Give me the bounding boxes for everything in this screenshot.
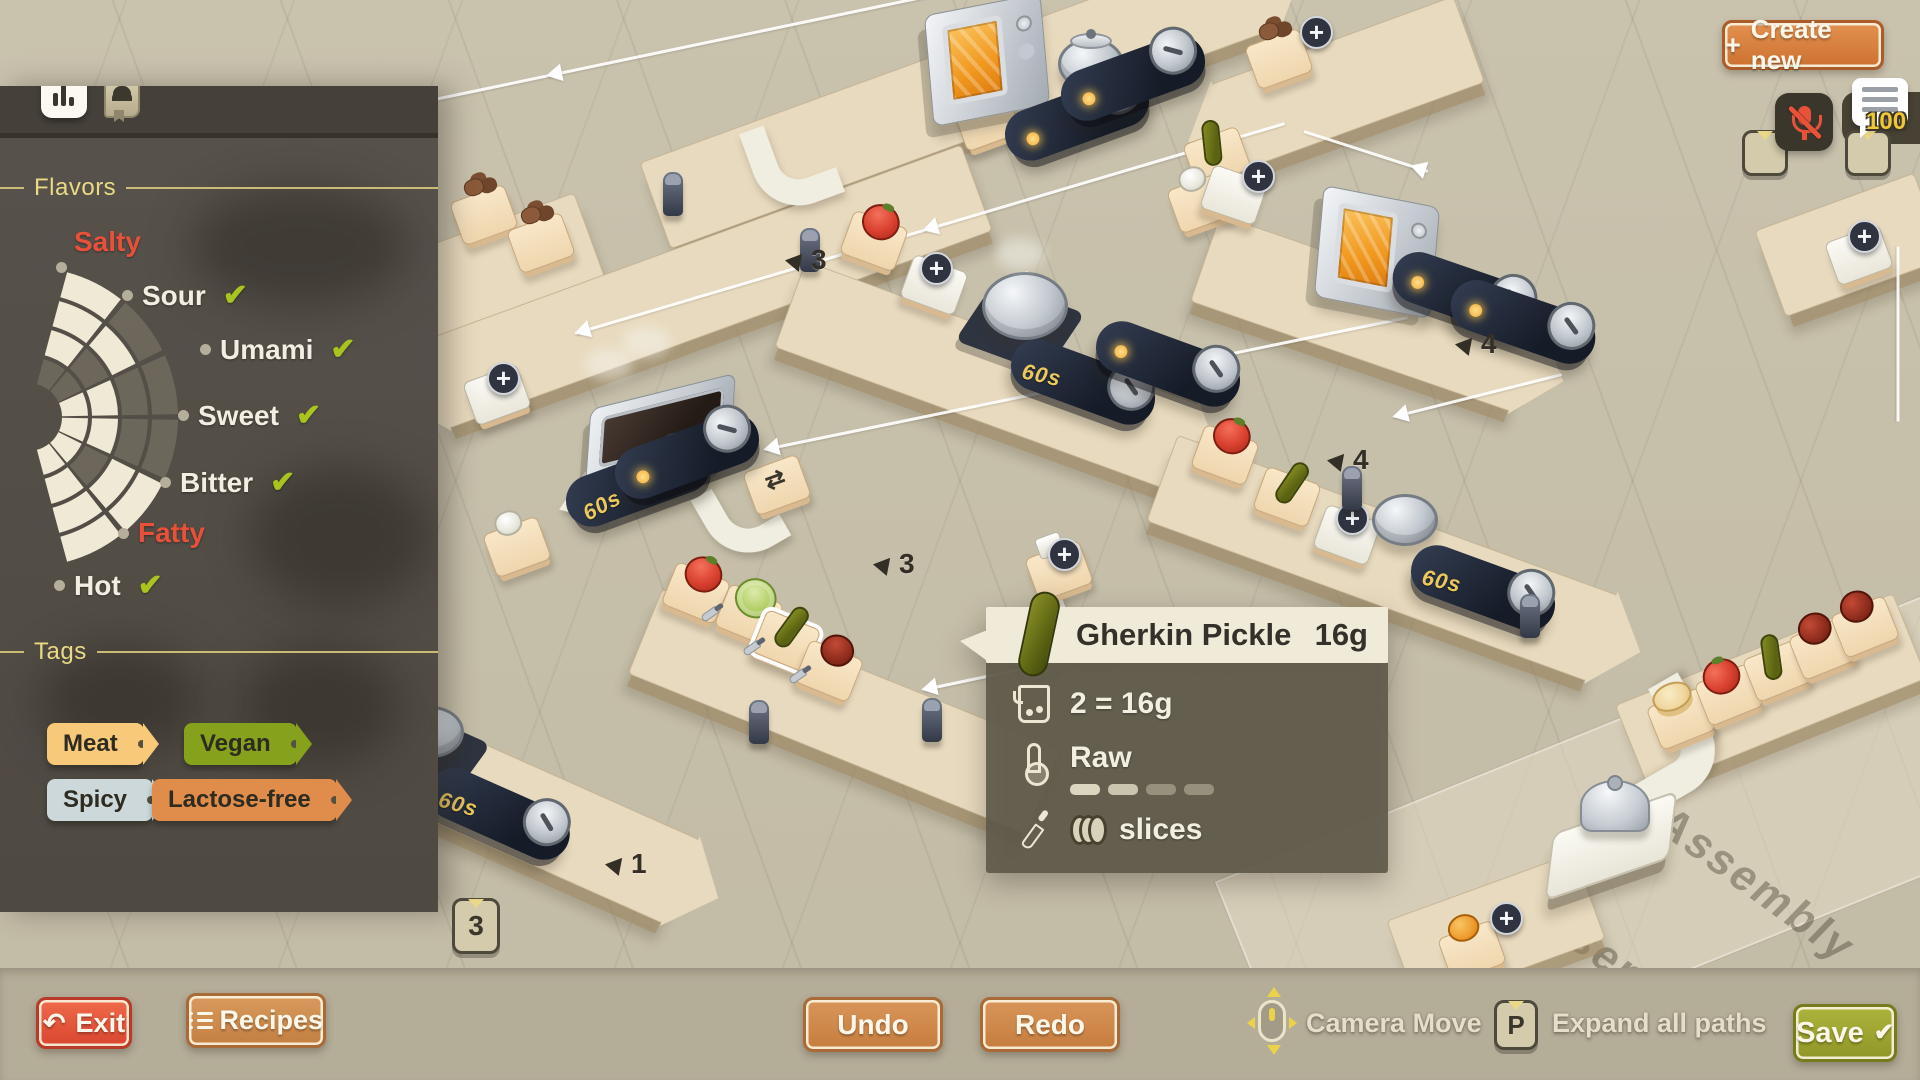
flavor-wheel-segment — [114, 368, 148, 416]
flavor-item-hot[interactable]: Hot✔ — [54, 568, 163, 603]
flavor-item-sweet[interactable]: Sweet✔ — [178, 398, 321, 433]
pickle-icon — [1272, 459, 1313, 507]
indicator-led — [1081, 90, 1098, 107]
create-new-button[interactable]: + Create new — [1722, 20, 1884, 70]
conveyor-path-line — [1897, 247, 1900, 422]
pepper-grinder[interactable] — [922, 698, 942, 742]
tooltip-state-row: Raw — [1012, 741, 1364, 795]
flavor-wheel-segment — [70, 349, 109, 389]
tooltip-state: Raw — [1070, 741, 1132, 774]
tooltip-pointer — [960, 629, 990, 663]
check-icon: ✔ — [223, 278, 248, 313]
timer-value: 60s — [435, 787, 480, 823]
add-ingredient-button[interactable] — [487, 362, 520, 395]
flavor-wheel-segment — [89, 326, 136, 376]
flavor-wheel-segment — [45, 330, 84, 367]
flavor-wheel-segment — [86, 380, 118, 416]
cloche-dome-icon — [1580, 780, 1650, 832]
flavor-wheel-segment — [60, 272, 121, 319]
flavors-section-header: Flavors — [0, 174, 438, 202]
flavor-item-umami[interactable]: Umami✔ — [200, 332, 356, 367]
path-count-badge: 3 — [876, 548, 915, 580]
timer-value: 60s — [1019, 359, 1063, 393]
flavor-item-sour[interactable]: Sour✔ — [122, 278, 248, 313]
meatball-icon — [815, 629, 859, 671]
tag-spicy[interactable]: Spicy — [47, 779, 153, 821]
ingredient-tooltip: Gherkin Pickle 16g 2 = 16g Raw slices — [986, 607, 1388, 873]
tag-label: Vegan — [200, 730, 271, 758]
flavor-wheel-segment — [37, 444, 65, 475]
oven-knobs-icon — [1410, 221, 1427, 240]
tooltip-header: Gherkin Pickle 16g — [986, 607, 1388, 663]
tooltip-quantity: 2 = 16g — [1070, 687, 1173, 721]
tags-title: Tags — [24, 638, 97, 666]
bent-arrow-icon — [1455, 332, 1479, 356]
check-icon: ✔ — [330, 332, 355, 367]
tooltip-prep-row: slices — [1012, 813, 1364, 847]
message-count-badge: 100 — [1866, 108, 1906, 136]
cook-state-meter — [1070, 784, 1214, 795]
flavors-title: Flavors — [24, 174, 126, 202]
flavor-wheel-segment — [86, 418, 118, 454]
tag-label: Spicy — [63, 786, 127, 814]
cutting-board[interactable] — [482, 515, 552, 578]
path-count-badge: 1 — [608, 848, 647, 880]
flavor-wheel-segment — [50, 371, 82, 402]
flavor-wheel-segment — [37, 359, 65, 390]
flavor-dot — [54, 580, 65, 591]
expand-paths-key[interactable]: P — [1494, 1000, 1538, 1050]
cooking-pot[interactable] — [1372, 494, 1438, 546]
plus-icon: + — [1725, 32, 1741, 59]
flavor-wheel-segment — [45, 467, 84, 504]
tag-lactose-free[interactable]: Lactose-free — [152, 779, 337, 821]
garlic-icon — [491, 507, 526, 540]
indicator-led — [1409, 274, 1426, 291]
oven-window — [942, 15, 1008, 106]
timer-value: 60s — [1419, 565, 1463, 599]
indicator-led — [635, 468, 652, 485]
pepper-grinder[interactable] — [663, 172, 683, 216]
knife-icon — [1012, 815, 1056, 845]
flavor-wheel-segment — [70, 446, 109, 486]
game-viewport: ⇄60s60s60s60s34413AssemblyAssembly Gherk… — [0, 0, 1920, 1080]
steam-puff — [585, 348, 633, 380]
path-arrow-icon — [1390, 404, 1410, 425]
add-ingredient-button[interactable] — [1300, 16, 1333, 49]
pepper-grinder[interactable] — [1520, 594, 1540, 638]
tag-hole — [331, 796, 339, 804]
indicator-led — [1025, 130, 1042, 147]
oven-knobs-icon — [1015, 14, 1032, 33]
save-button[interactable]: Save ✔ — [1793, 1004, 1897, 1062]
thermometer-icon — [1012, 743, 1056, 773]
tooltip-prep: slices — [1119, 813, 1202, 847]
tomato-icon — [679, 551, 728, 599]
back-arrow-icon: ↶ — [43, 1010, 66, 1037]
flavor-dot — [56, 262, 67, 273]
microphone-muted-button[interactable] — [1775, 93, 1833, 151]
path-count-badge: 3 — [788, 244, 827, 276]
flavor-dot — [178, 410, 189, 421]
add-ingredient-button[interactable] — [920, 252, 953, 285]
add-ingredient-button[interactable] — [1242, 160, 1275, 193]
flavor-dot — [122, 290, 133, 301]
bent-arrow-icon — [785, 248, 809, 272]
tab-flavor-stats[interactable] — [41, 86, 87, 118]
flavor-wheel-segment — [114, 419, 148, 467]
path-count-badge: 4 — [1330, 444, 1369, 476]
add-ingredient-button[interactable] — [1490, 902, 1523, 935]
camera-move-label: Camera Move — [1306, 1008, 1482, 1039]
swap-icon: ⇄ — [761, 463, 790, 497]
expand-all-paths-label: Expand all paths — [1552, 1008, 1767, 1039]
tag-vegan[interactable]: Vegan — [184, 723, 297, 765]
path-arrow-icon — [544, 64, 563, 85]
beaker-icon — [1012, 685, 1056, 723]
bent-arrow-icon — [873, 552, 897, 576]
path-arrow-icon — [762, 437, 781, 458]
tags-section-header: Tags — [0, 638, 438, 666]
flavor-dot — [118, 528, 129, 539]
flavor-dot — [160, 477, 171, 488]
recipes-button[interactable]: Recipes — [186, 993, 326, 1048]
tag-meat[interactable]: Meat — [47, 723, 144, 765]
tooltip-weight: 16g — [1315, 617, 1368, 653]
recipe-book-icon — [104, 86, 140, 118]
list-icon — [189, 1012, 209, 1030]
check-icon: ✔ — [138, 568, 163, 603]
undo-button[interactable]: Undo — [803, 997, 943, 1052]
check-icon: ✔ — [270, 465, 295, 500]
flavor-dot — [200, 344, 211, 355]
tab-recipe-book[interactable] — [100, 86, 146, 120]
flavor-label: Bitter — [180, 467, 253, 499]
add-ingredient-button[interactable] — [1048, 538, 1081, 571]
tooltip-title: Gherkin Pickle — [1076, 617, 1291, 653]
indicator-led — [1467, 302, 1484, 319]
timer-value: 60s — [578, 485, 625, 527]
pepper-grinder[interactable] — [749, 700, 769, 744]
steam-puff — [996, 238, 1044, 270]
flavor-wheel-segment — [89, 459, 136, 509]
path-count-badge: 4 — [1458, 328, 1497, 360]
check-icon: ✔ — [296, 398, 321, 433]
meatball-icon — [1835, 585, 1879, 627]
path-arrow-icon — [920, 678, 939, 699]
tag-label: Meat — [63, 730, 118, 758]
oven-window — [1332, 202, 1398, 293]
bent-arrow-icon — [1327, 448, 1351, 472]
exit-button[interactable]: ↶ Exit — [36, 997, 132, 1049]
flavor-label: Salty — [74, 226, 141, 258]
flavor-label: Sweet — [198, 400, 279, 432]
indicator-led — [1113, 343, 1130, 360]
flavor-item-bitter[interactable]: Bitter✔ — [160, 465, 295, 500]
tag-hole — [138, 740, 146, 748]
tag-hole — [291, 740, 299, 748]
tooltip-quantity-row: 2 = 16g — [1012, 685, 1364, 723]
flavor-wheel-segment — [50, 432, 82, 463]
flavor-wheel-segment — [59, 418, 88, 442]
flavor-item-fatty[interactable]: Fatty — [118, 517, 205, 549]
flavor-label: Umami — [220, 334, 313, 366]
check-icon: ✔ — [1874, 1021, 1894, 1045]
slices-icon — [1070, 815, 1107, 845]
flavor-wheel-segment — [53, 301, 103, 343]
add-ingredient-button[interactable] — [1848, 220, 1881, 253]
flavor-wheel-segment — [141, 355, 178, 414]
redo-button[interactable]: Redo — [980, 997, 1120, 1052]
flavor-label: Hot — [74, 570, 121, 602]
bar-chart-icon — [52, 86, 76, 108]
flavor-label: Sour — [142, 280, 206, 312]
flavor-label: Fatty — [138, 517, 205, 549]
steam-puff — [622, 326, 670, 358]
dial-knob[interactable] — [1541, 295, 1602, 356]
flavor-wheel-segment — [53, 491, 103, 533]
path-arrow-icon — [1408, 157, 1429, 179]
meatball-icon — [1793, 607, 1837, 649]
tag-label: Lactose-free — [168, 786, 311, 814]
flavor-wheel-segment — [60, 514, 121, 561]
flavor-wheel-segment — [59, 392, 88, 416]
ingredient-filter-panel: Flavors SaltySour✔Umami✔Sweet✔Bitter✔Fat… — [0, 86, 438, 912]
bent-arrow-icon — [605, 852, 629, 876]
mouse-icon — [1258, 1000, 1286, 1042]
flavor-item-salty[interactable]: Salty — [74, 226, 141, 258]
cooking-pot[interactable] — [982, 272, 1068, 340]
tooltip-body: 2 = 16g Raw slices — [986, 663, 1388, 873]
meat-icon — [462, 176, 487, 199]
panel-hotkey-badge[interactable]: 3 — [452, 898, 500, 954]
dial-knob[interactable] — [1186, 338, 1248, 400]
